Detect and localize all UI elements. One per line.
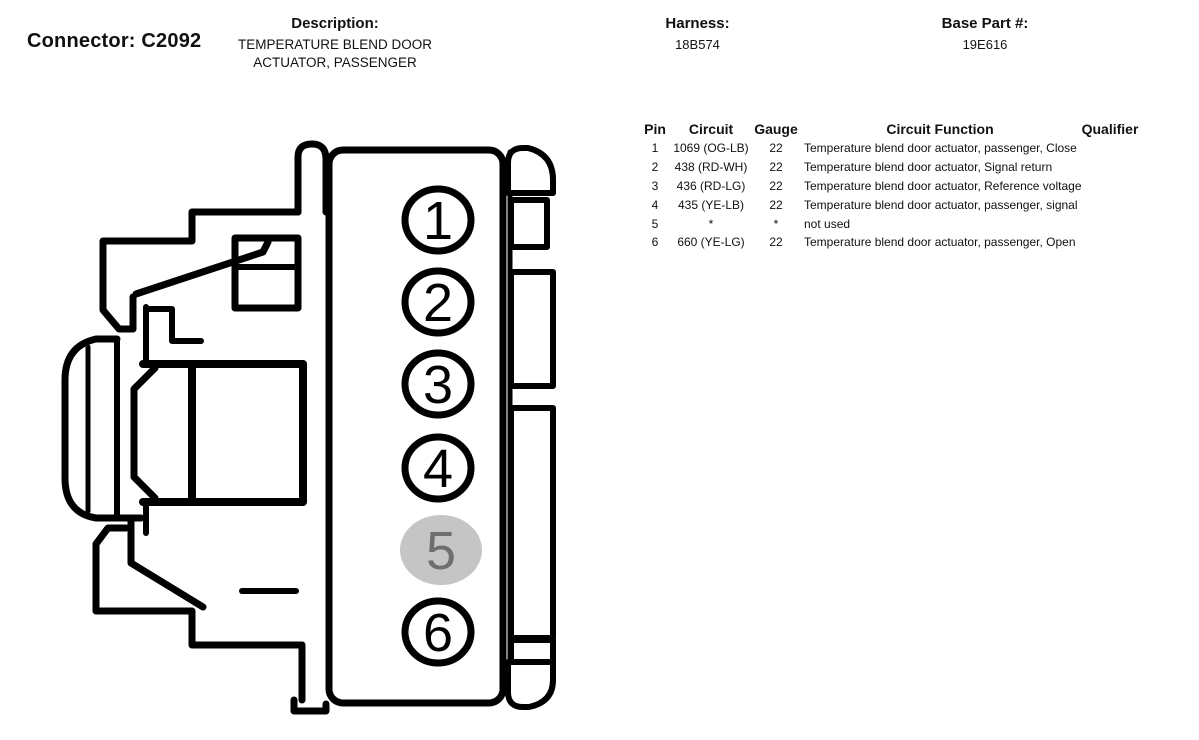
cavity-outline [143,364,303,502]
cell-gauge: 22 [752,235,800,249]
lower-latch-lever [131,522,203,607]
pin-table-row: 5 * * not used [640,214,1150,233]
face-strip-band [511,640,553,662]
pin-table-row: 1 1069 (OG-LB) 22 Temperature blend door… [640,139,1150,158]
pin-table: Pin Circuit Gauge Circuit Function Quali… [640,118,1150,252]
bottom-tab-foot [294,700,326,711]
cell-function: Temperature blend door actuator, Referen… [800,179,1080,193]
harness-value: 18B574 [640,36,755,54]
connector-drawing: 123456 [50,130,575,725]
face-strip-bottom-piece [508,662,553,707]
pin-number-label: 3 [423,355,453,415]
pin-number-label: 2 [423,273,453,333]
cell-circuit: 1069 (OG-LB) [670,141,752,155]
seal-bump [65,339,141,518]
cell-circuit: 435 (YE-LB) [670,198,752,212]
pin-5-highlighted: 5 [400,515,482,585]
description-line2: ACTUATOR, PASSENGER [215,54,455,72]
column-header-gauge: Gauge [752,121,800,137]
pin-3: 3 [405,353,471,415]
cell-circuit: 436 (RD-LG) [670,179,752,193]
cell-pin: 1 [640,141,670,155]
pin-1: 1 [405,189,471,251]
cell-gauge: 22 [752,198,800,212]
column-header-circuit: Circuit [670,121,752,137]
connector-title: Connector: C2092 [27,30,201,53]
lower-latch-contour [96,528,302,645]
cell-circuit: 438 (RD-WH) [670,160,752,174]
cavity-left-cap [134,368,155,498]
pin-table-row: 2 438 (RD-WH) 22 Temperature blend door … [640,158,1150,177]
cell-function: Temperature blend door actuator, passeng… [800,235,1080,249]
cell-function: Temperature blend door actuator, Signal … [800,160,1080,174]
cell-gauge: * [752,217,800,231]
cell-pin: 3 [640,179,670,193]
cell-gauge: 22 [752,160,800,174]
face-strip-slot-1 [511,200,547,247]
pin-4: 4 [405,437,471,499]
cell-circuit: 660 (YE-LG) [670,235,752,249]
pin-table-header: Pin Circuit Gauge Circuit Function Quali… [640,118,1150,139]
pin-number-label: 6 [423,603,453,663]
base-part-block: Base Part #: 19E616 [905,15,1065,54]
face-strip-slot-2 [511,272,553,386]
pin-2: 2 [405,271,471,333]
pin-table-row: 6 660 (YE-LG) 22 Temperature blend door … [640,233,1150,252]
connector-pinout-page: Connector: C2092 Description: TEMPERATUR… [0,0,1199,740]
face-strip-top-piece [508,148,553,193]
description-line1: TEMPERATURE BLEND DOOR [215,36,455,54]
pin-table-row: 3 436 (RD-LG) 22 Temperature blend door … [640,177,1150,196]
pin-table-rows: 1 1069 (OG-LB) 22 Temperature blend door… [640,139,1150,252]
pin-number-label: 4 [423,439,453,499]
cell-pin: 2 [640,160,670,174]
pin-table-row: 4 435 (YE-LB) 22 Temperature blend door … [640,195,1150,214]
column-header-function: Circuit Function [800,121,1080,137]
cell-gauge: 22 [752,179,800,193]
upper-latch-step [146,307,201,364]
base-part-value: 19E616 [905,36,1065,54]
cell-gauge: 22 [752,141,800,155]
cell-function: Temperature blend door actuator, passeng… [800,198,1080,212]
cell-pin: 4 [640,198,670,212]
cell-circuit: * [670,217,752,231]
column-header-pin: Pin [640,121,670,137]
pin-6: 6 [405,601,471,663]
cell-pin: 5 [640,217,670,231]
base-part-label: Base Part #: [905,15,1065,33]
pin-number-label: 5 [426,521,456,581]
cell-function: Temperature blend door actuator, passeng… [800,141,1080,155]
harness-label: Harness: [640,15,755,33]
description-block: Description: TEMPERATURE BLEND DOOR ACTU… [215,15,455,72]
face-strip-slot-3 [511,408,553,638]
cell-function: not used [800,217,1080,231]
pin-number-label: 1 [423,191,453,251]
top-tab [298,144,326,212]
cell-pin: 6 [640,235,670,249]
harness-block: Harness: 18B574 [640,15,755,54]
column-header-qualifier: Qualifier [1080,121,1140,137]
description-label: Description: [215,15,455,33]
